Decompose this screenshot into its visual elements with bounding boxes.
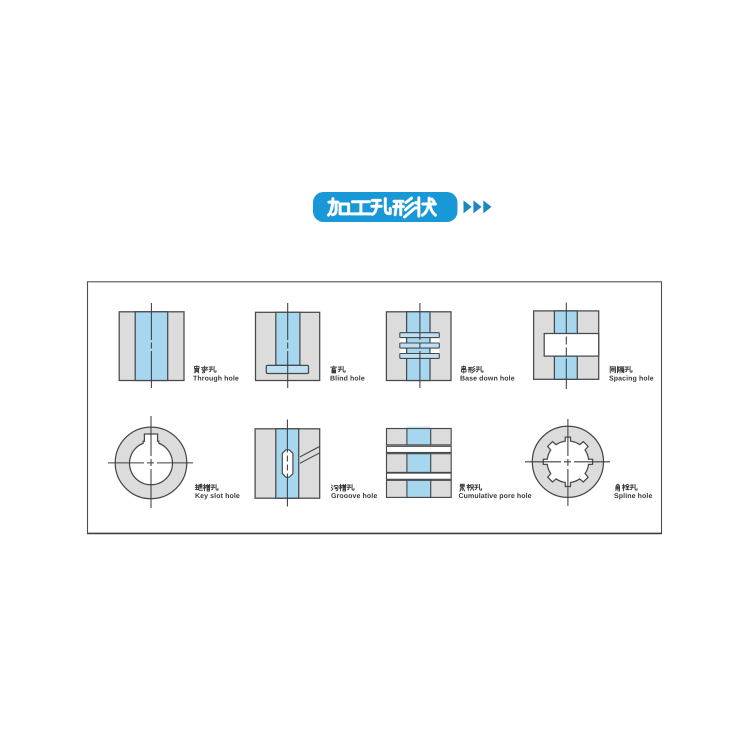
svg-text:Spacing hole: Spacing hole bbox=[609, 374, 654, 382]
svg-text:Key slot hole: Key slot hole bbox=[195, 492, 240, 500]
svg-text:Spline hole: Spline hole bbox=[614, 492, 652, 500]
svg-text:Grooove hole: Grooove hole bbox=[331, 492, 377, 500]
svg-text:Blind hole: Blind hole bbox=[330, 374, 365, 382]
svg-text:Base down hole: Base down hole bbox=[460, 374, 515, 382]
svg-text:Through hole: Through hole bbox=[193, 374, 239, 382]
svg-text:Cumulative pore hole: Cumulative pore hole bbox=[459, 492, 532, 500]
